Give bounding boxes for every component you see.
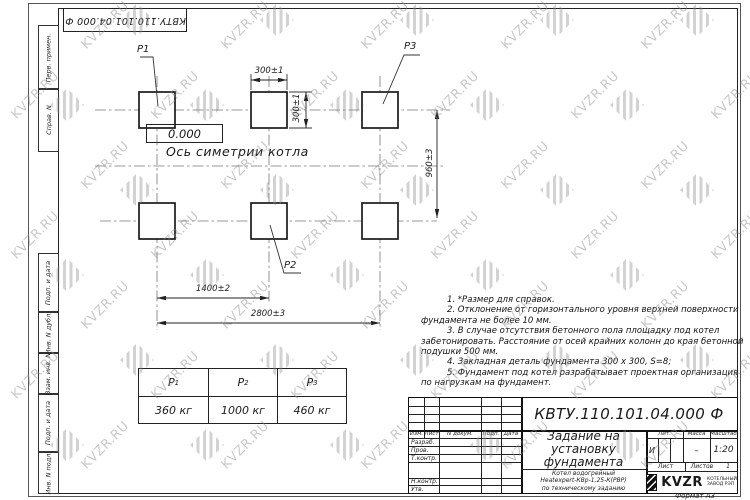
tb-col-podp: Подп. <box>481 430 501 438</box>
title-block: Изм. Лист N докум. Подп. Дата Разраб. Пр… <box>408 397 738 494</box>
foundation-pad-top-middle <box>251 92 287 128</box>
technical-notes: 1. *Размер для справок. 2. Отклонение от… <box>421 295 729 389</box>
load-table-value-p1: 360 кг <box>139 396 208 423</box>
tb-lit-value: И <box>646 438 658 462</box>
dimension-pad-width: 300±1 <box>249 66 289 76</box>
tb-col-izm: Изм. <box>409 430 424 438</box>
tb-col-data: Дата <box>501 430 521 438</box>
tb-row-tkontr: Т.контр. <box>409 454 441 462</box>
dimension-inner-span: 1400±2 <box>185 284 241 294</box>
symmetry-axis-label: Ось симетрии котла <box>166 144 309 159</box>
tb-logo-cell: KVZR КОТЕЛЬНЫЙ ЗАВОД РЭП <box>646 471 737 493</box>
note-line: 2. Отклонение от горизонтального уровня … <box>421 305 729 315</box>
tb-title: Задание на установку фундамента <box>521 430 646 469</box>
tb-row-nkontr: Н.контр. <box>409 478 441 485</box>
tb-doc-number: КВТУ.110.101.04.000 Ф <box>521 398 737 430</box>
tb-row-prov: Пров. <box>409 446 441 454</box>
tb-col-list: Лист <box>424 430 439 438</box>
load-table-header-p1: P1 <box>139 369 208 396</box>
dimension-outer-span: 2800±3 <box>240 309 296 319</box>
kvzr-logo-name: KVZR <box>661 475 703 490</box>
tb-list-label: Лист <box>646 462 685 471</box>
tb-product-line: Котел водогрейный <box>552 470 615 477</box>
pad-label-p1: P1 <box>137 44 149 55</box>
tb-massa-label: Масса <box>683 430 710 438</box>
note-line: 3. В случае отсутствия бетонного пола пл… <box>421 326 729 336</box>
logo-subtitle-line: ЗАВОД РЭП <box>707 482 737 487</box>
load-table-header-p2: P2 <box>208 369 277 396</box>
tb-row-razrab: Разраб. <box>409 438 441 446</box>
tb-scale-value: 1:20 <box>710 438 737 462</box>
note-line: подушки 500 мм. <box>421 347 729 357</box>
dimension-pad-height: 300±1 <box>292 88 302 128</box>
note-line: 1. *Размер для справок. <box>421 295 729 305</box>
elevation-mark: 0.000 <box>146 124 223 143</box>
foundation-pad-bottom-right <box>362 203 398 239</box>
tb-listov-label: Листов <box>685 462 719 471</box>
load-table-header-p3: P3 <box>277 369 346 396</box>
tb-product: Котел водогрейный Heatexpert-КВр-1,25-К(… <box>521 469 646 493</box>
tb-col-doc: N докум. <box>439 430 481 438</box>
kvzr-logo-icon <box>646 474 657 491</box>
tb-product-line: Heatexpert-КВр-1,25-К(РВР) <box>540 477 626 484</box>
pad-label-p3: P3 <box>404 41 416 52</box>
load-table-value-p3: 460 кг <box>277 396 346 423</box>
foundation-pad-p3 <box>362 92 398 128</box>
dimension-row-spacing: 960±3 <box>425 141 435 185</box>
foundation-pad-bottom-left <box>139 203 175 239</box>
kvzr-logo-subtitle: КОТЕЛЬНЫЙ ЗАВОД РЭП <box>707 477 737 488</box>
tb-listov-value: 1 <box>719 462 737 471</box>
load-table: P1 P2 P3 360 кг 1000 кг 460 кг <box>138 368 347 424</box>
format-note: Формат А3 <box>640 492 750 500</box>
load-table-value-p2: 1000 кг <box>208 396 277 423</box>
tb-title-line: фундамента <box>544 456 623 469</box>
tb-masshtab-label: Масштаб <box>710 430 737 438</box>
tb-product-line: по техническому заданию <box>542 485 625 492</box>
drawing-sheet: Перв. примен. Справ. N Подп. и дата Инв.… <box>0 0 750 500</box>
tb-row-utv: Утв. <box>409 485 441 493</box>
note-line: 4. Закладная деталь фундамента 300 х 300… <box>421 357 729 367</box>
pad-label-p2: P2 <box>284 260 296 271</box>
note-line: забетонировать. Расстояние от осей крайн… <box>421 337 729 347</box>
note-line: по нагрузкам на фундамент. <box>421 378 729 388</box>
tb-massa-value: – <box>683 438 710 462</box>
foundation-pad-p2 <box>251 203 287 239</box>
note-line: 5. Фундамент под котел разрабатывает про… <box>421 368 729 378</box>
note-line: фундамента не более 10 мм. <box>421 316 729 326</box>
tb-lit-label: Лит. <box>646 430 683 438</box>
